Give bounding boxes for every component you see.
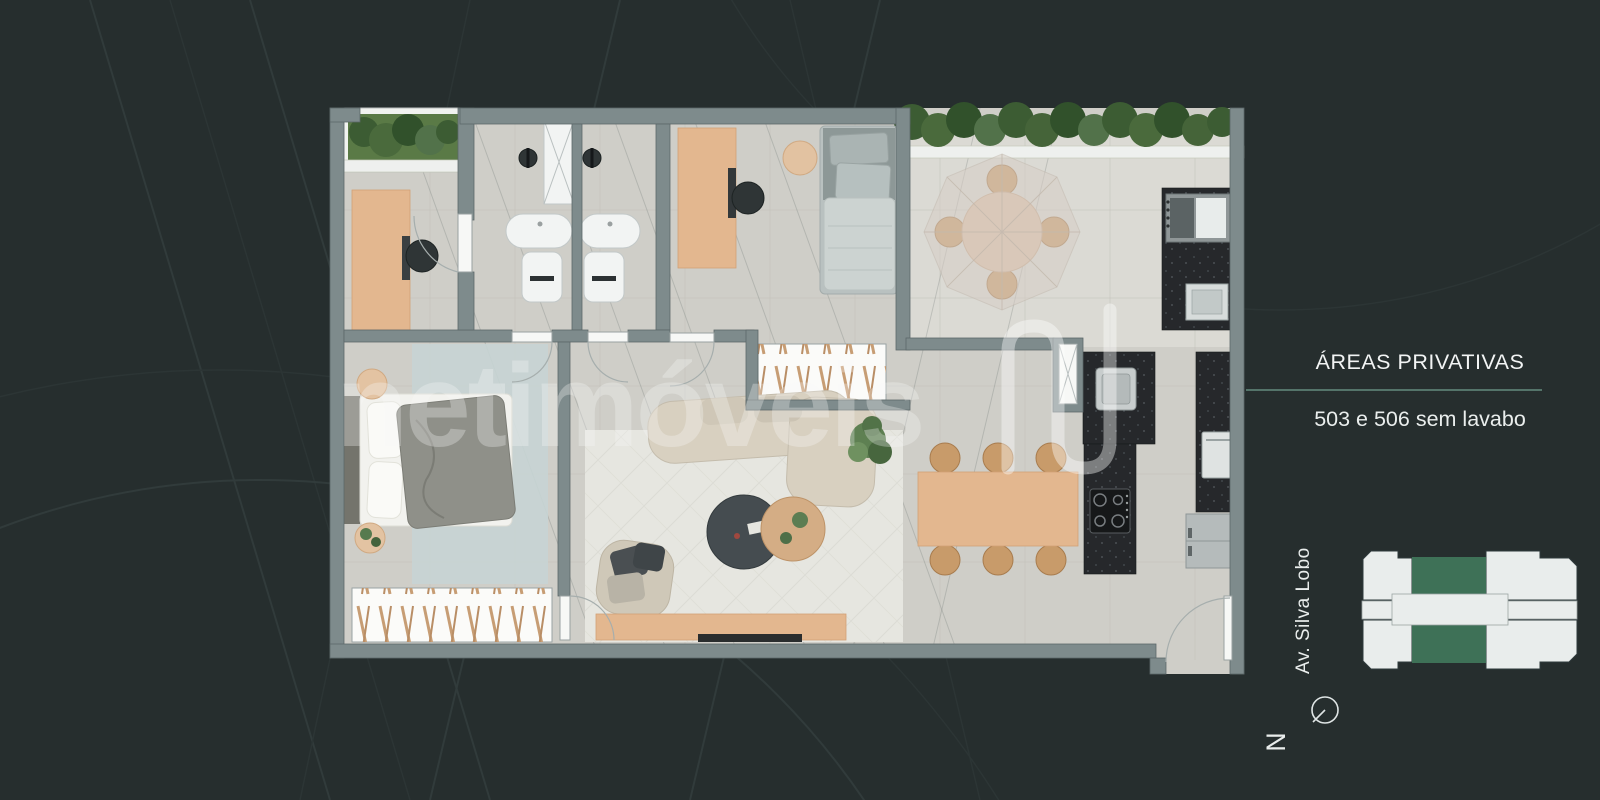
bbq-counter: [1162, 188, 1234, 330]
desk-2: [678, 128, 736, 268]
armchair: [593, 537, 677, 621]
office-2-door: [670, 333, 714, 342]
building-keyplan: [1362, 551, 1577, 669]
keyplan-right-wing: [1486, 551, 1577, 600]
entry-door: [1224, 596, 1232, 660]
bed-duvet: [396, 395, 516, 530]
vanity-2: [580, 214, 640, 248]
desk-chair-2: [732, 182, 764, 214]
bed-headboard: [344, 396, 360, 524]
wardrobe-bedroom: [352, 588, 552, 642]
dining-table: [918, 472, 1078, 546]
keyplan-right-wing-lower: [1486, 620, 1577, 669]
compass-needle: [1313, 710, 1325, 722]
bathroom-2-door: [588, 332, 628, 342]
areas-privativas-title: ÁREAS PRIVATIVAS: [1270, 350, 1570, 375]
units-subtitle: 503 e 506 sem lavabo: [1270, 407, 1570, 432]
desk-1: [352, 190, 410, 330]
cooktop: [1090, 489, 1130, 533]
parasol: [924, 154, 1080, 310]
compass: [1312, 697, 1338, 723]
compass-north-label: N: [1258, 724, 1294, 760]
keyplan-core: [1392, 594, 1508, 625]
keyplan-highlight-unit-bottom: [1412, 620, 1486, 663]
floor-plan: [330, 102, 1244, 674]
coffee-table-wood: [761, 497, 825, 561]
nightstand-top: [357, 369, 387, 399]
dining-set: [918, 443, 1078, 575]
tv: [698, 634, 802, 642]
keyplan-left-wing-lower: [1363, 620, 1412, 669]
vanity-1: [506, 214, 572, 248]
pouf: [783, 141, 817, 175]
street-label: Av. Silva Lobo: [1293, 547, 1315, 675]
single-bed: [820, 126, 898, 294]
tv-console: [596, 614, 846, 642]
bedroom-door: [560, 596, 570, 640]
ensuite-door: [512, 332, 552, 342]
scene-graphics: [0, 0, 1600, 800]
marketing-floorplan-slide: netimóveis ÁREAS PRIVATIVAS 503 e 506 se…: [0, 0, 1600, 800]
keyplan-left-wing: [1363, 551, 1412, 600]
office-1-door: [458, 214, 472, 272]
keyplan-highlight-unit-top: [1412, 557, 1486, 600]
divider-line: [1246, 389, 1542, 391]
planter-box: [344, 108, 462, 172]
